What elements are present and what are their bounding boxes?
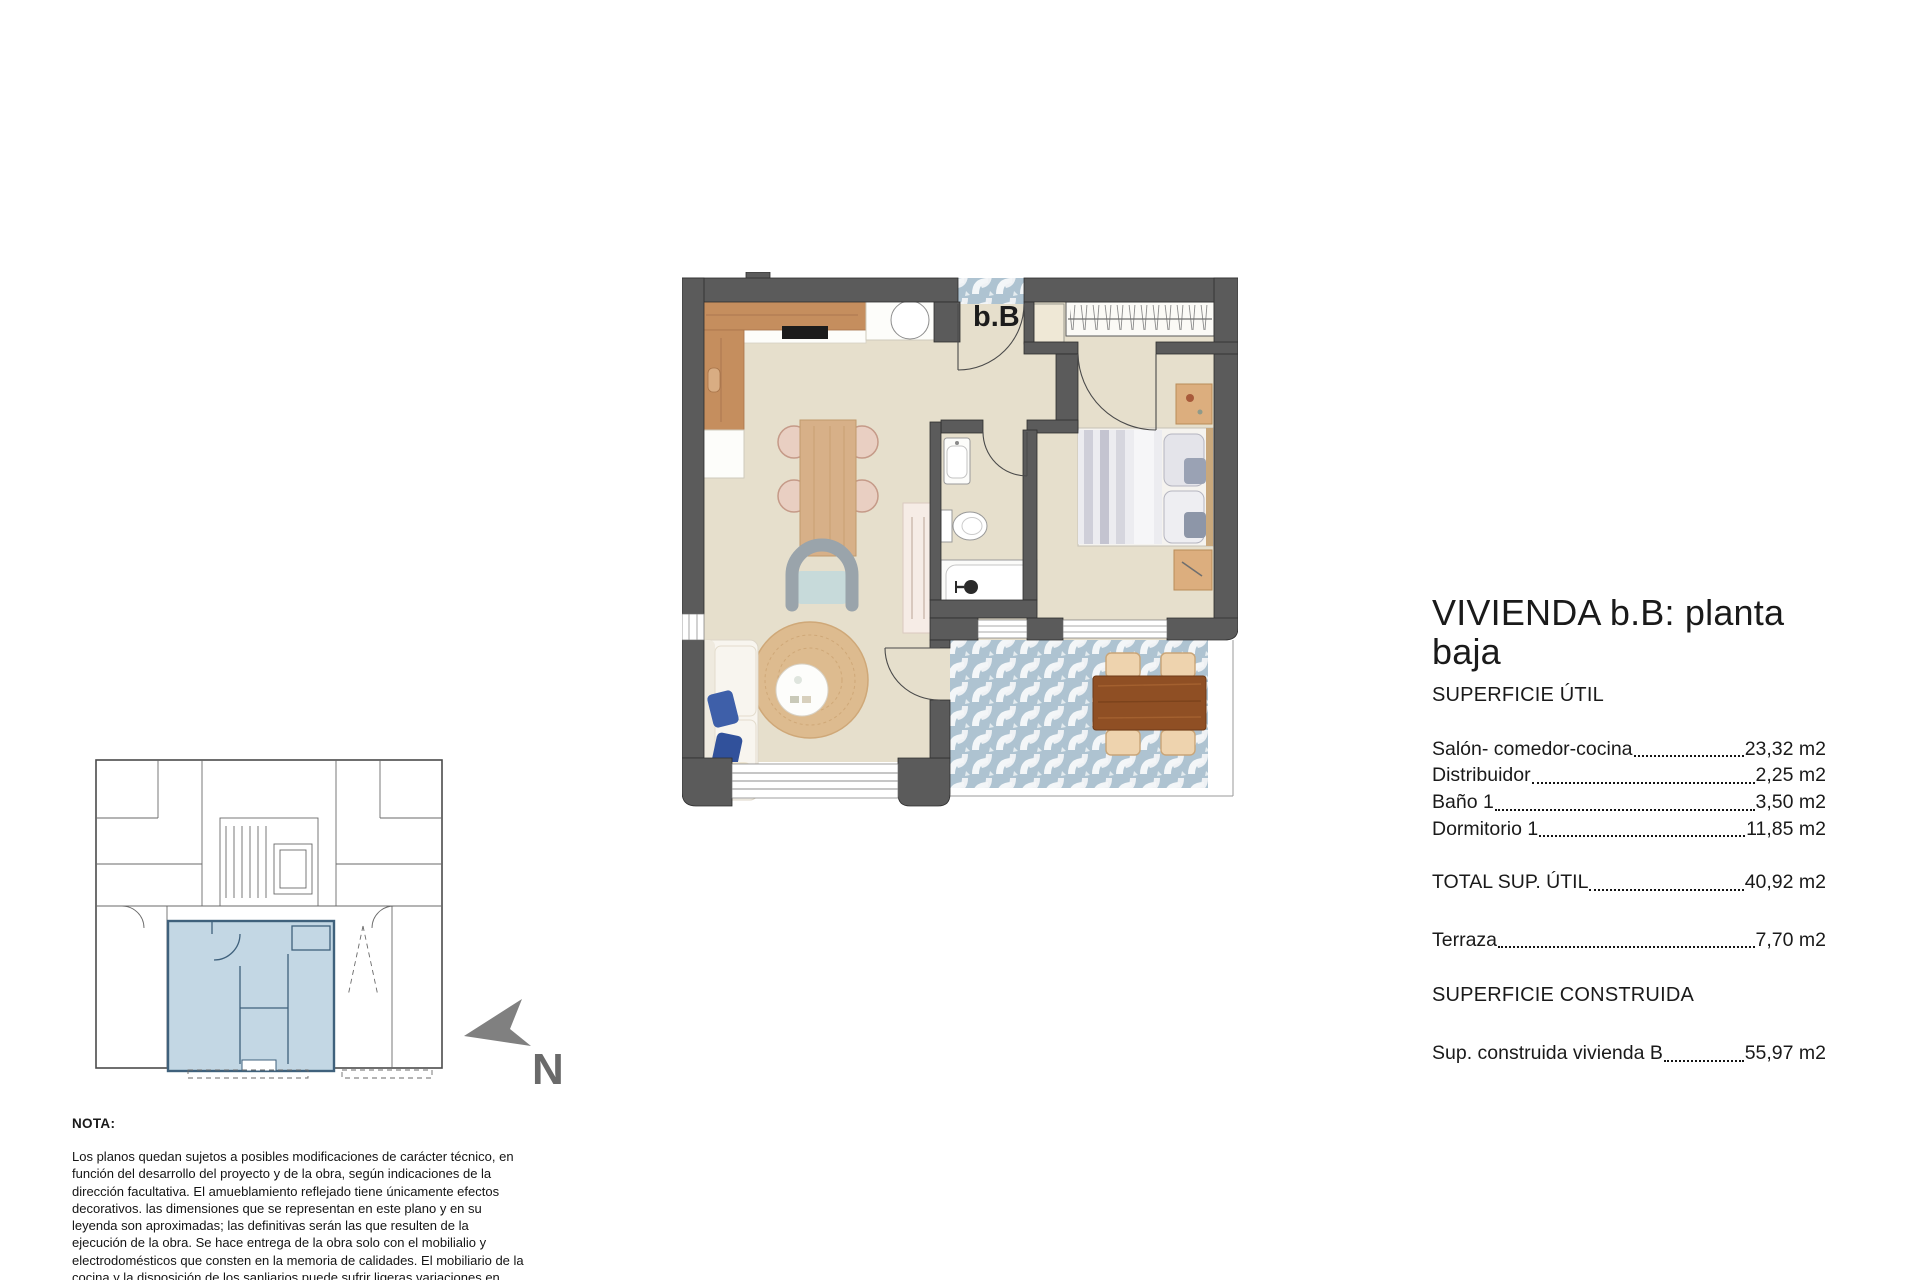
cooktop bbox=[782, 326, 828, 339]
surface-row-value: 2,25 m2 bbox=[1756, 762, 1826, 789]
kitchen-sink bbox=[891, 301, 929, 339]
dot-leader bbox=[1532, 782, 1755, 784]
surface-rows: Salón- comedor-cocina 23,32 m2 Distribui… bbox=[1432, 736, 1826, 842]
nightstand bbox=[1176, 384, 1212, 424]
construida-value: 55,97 m2 bbox=[1745, 1040, 1826, 1067]
surface-row-label: Dormitorio 1 bbox=[1432, 816, 1538, 843]
toilet bbox=[941, 510, 987, 542]
nota-heading: NOTA: bbox=[72, 1116, 524, 1131]
nota-body: Los planos quedan sujetos a posibles mod… bbox=[72, 1148, 524, 1280]
nota-block: NOTA: Los planos quedan sujetos a posibl… bbox=[72, 1116, 524, 1280]
dot-leader bbox=[1634, 755, 1744, 757]
construida-label: Sup. construida vivienda B bbox=[1432, 1040, 1663, 1067]
entry-cabinet bbox=[1034, 304, 1064, 342]
nightstand bbox=[1174, 550, 1212, 590]
surface-row-value: 23,32 m2 bbox=[1745, 736, 1826, 763]
surface-row: Salón- comedor-cocina 23,32 m2 bbox=[1432, 736, 1826, 763]
bed bbox=[1078, 428, 1213, 546]
shower-drain bbox=[964, 580, 978, 594]
main-floor-plan: b.B bbox=[682, 272, 1238, 807]
floor-plan-page: b.B bbox=[0, 0, 1920, 1280]
dot-leader bbox=[1664, 1060, 1744, 1062]
terrace bbox=[950, 640, 1238, 806]
section-superficie-util: SUPERFICIE ÚTIL bbox=[1432, 684, 1826, 707]
surface-row-value: 11,85 m2 bbox=[1746, 816, 1826, 843]
surface-row: Baño 1 3,50 m2 bbox=[1432, 789, 1826, 816]
construida-row: Sup. construida vivienda B 55,97 m2 bbox=[1432, 1040, 1826, 1067]
dot-leader bbox=[1495, 809, 1755, 811]
key-plan-highlighted-unit bbox=[168, 921, 334, 1071]
total-util-label: TOTAL SUP. ÚTIL bbox=[1432, 869, 1588, 896]
bathroom-sink bbox=[944, 438, 970, 484]
unit-label: b.B bbox=[973, 301, 1020, 333]
console-sideboard bbox=[903, 503, 933, 633]
key-plan bbox=[92, 756, 446, 1080]
total-util-row: TOTAL SUP. ÚTIL 40,92 m2 bbox=[1432, 869, 1826, 896]
page-title: VIVIENDA b.B: planta baja bbox=[1432, 594, 1826, 672]
dot-leader bbox=[1589, 889, 1743, 891]
dining-table bbox=[800, 420, 856, 556]
dot-leader bbox=[1539, 835, 1745, 837]
surface-row: Dormitorio 1 11,85 m2 bbox=[1432, 816, 1826, 843]
north-indicator: N bbox=[452, 988, 602, 1092]
surface-row: Distribuidor 2,25 m2 bbox=[1432, 762, 1826, 789]
dot-leader bbox=[1498, 946, 1755, 948]
rug bbox=[752, 622, 868, 738]
terraza-row: Terraza 7,70 m2 bbox=[1432, 927, 1826, 954]
wardrobe bbox=[1066, 302, 1214, 336]
surface-specs: VIVIENDA b.B: planta baja SUPERFICIE ÚTI… bbox=[1432, 594, 1826, 1067]
terraza-value: 7,70 m2 bbox=[1756, 927, 1826, 954]
coffee-table bbox=[776, 664, 828, 716]
surface-row-value: 3,50 m2 bbox=[1756, 789, 1826, 816]
total-util-value: 40,92 m2 bbox=[1745, 869, 1826, 896]
surface-row-label: Salón- comedor-cocina bbox=[1432, 736, 1633, 763]
north-label: N bbox=[532, 1045, 564, 1092]
north-arrow-icon bbox=[464, 999, 531, 1046]
terrace-table bbox=[1093, 676, 1206, 730]
terraza-label: Terraza bbox=[1432, 927, 1497, 954]
surface-row-label: Baño 1 bbox=[1432, 789, 1494, 816]
surface-row-label: Distribuidor bbox=[1432, 762, 1531, 789]
section-superficie-construida: SUPERFICIE CONSTRUIDA bbox=[1432, 984, 1826, 1007]
